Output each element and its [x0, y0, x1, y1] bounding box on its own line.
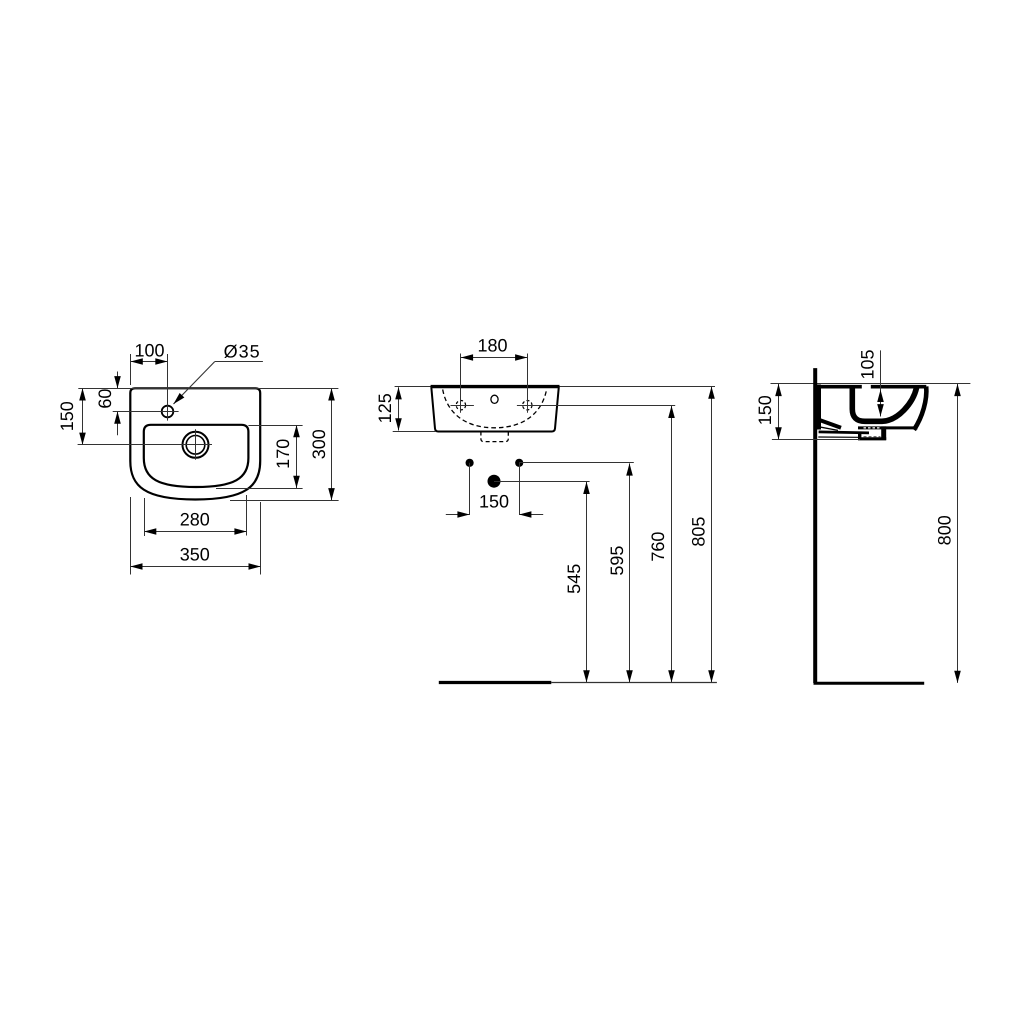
svg-text:60: 60 [95, 389, 115, 409]
svg-text:Ø35: Ø35 [224, 341, 261, 361]
svg-text:150: 150 [57, 401, 77, 431]
svg-text:545: 545 [564, 564, 584, 594]
svg-text:105: 105 [857, 349, 877, 379]
svg-text:805: 805 [688, 517, 708, 547]
svg-text:280: 280 [180, 510, 210, 530]
svg-text:180: 180 [477, 335, 507, 355]
svg-text:760: 760 [648, 532, 668, 562]
svg-text:150: 150 [479, 492, 509, 512]
svg-text:150: 150 [755, 395, 775, 425]
svg-text:800: 800 [935, 515, 955, 545]
svg-text:170: 170 [273, 439, 293, 469]
svg-text:350: 350 [180, 544, 210, 564]
svg-text:125: 125 [375, 393, 395, 423]
svg-text:100: 100 [134, 341, 164, 361]
svg-text:595: 595 [607, 546, 627, 576]
svg-text:300: 300 [309, 429, 329, 459]
